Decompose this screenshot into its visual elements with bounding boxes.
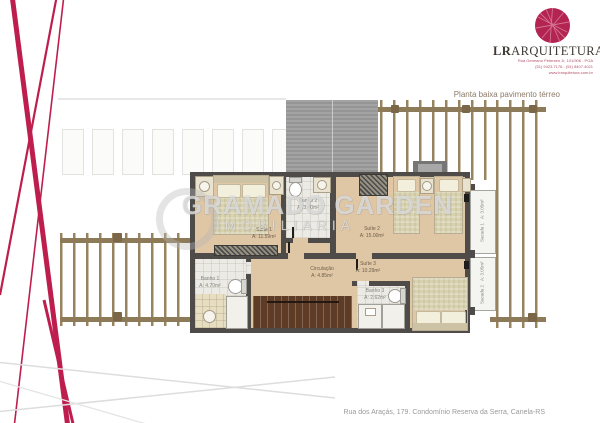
pergola-post-3	[529, 105, 537, 113]
room-label-suite2: Suíte 2 A: 15.00m²	[350, 226, 394, 239]
toilet-tank	[400, 288, 406, 304]
paver-path	[62, 129, 294, 175]
ribbon-line-left	[0, 0, 57, 295]
door-opening-suite3	[356, 253, 372, 259]
paver	[182, 129, 204, 175]
stairs	[253, 296, 352, 328]
room-area: A: 2.62m²	[360, 295, 390, 302]
room-label-sacada2: Sacada 2 A: 3.05m²	[472, 259, 492, 307]
paver	[62, 129, 84, 175]
firm-name-rest: ARQUITETURA	[511, 44, 600, 58]
left-deck-beam-bottom	[60, 317, 190, 322]
footer-address: Rua dos Araçás, 179. Condomínio Reserva …	[245, 409, 545, 416]
suite2-side-table	[462, 178, 471, 192]
room-area: A: 3.05m²	[480, 260, 485, 284]
banho1-shower-stall	[226, 296, 248, 329]
room-label-suite3: Suíte 3 A: 10.29m²	[346, 261, 390, 274]
room-label-banho1: Banho 1 A: 4.70m²	[193, 276, 227, 289]
chimney-core	[418, 164, 442, 172]
firm-contact: Rua Germano Petersen Jr, 101/906 - POA (…	[493, 58, 593, 75]
plan-title: Planta baixa pavimento térreo	[360, 90, 560, 99]
door-leaf-sacada2	[464, 261, 469, 269]
left-deck-post-top	[113, 233, 122, 242]
room-name: Sacada 2	[480, 283, 485, 306]
top-pergola-beam	[375, 107, 546, 112]
room-area: A: 15.00m²	[350, 233, 394, 240]
suite1-wardrobe	[214, 245, 278, 256]
left-deck-slats	[60, 233, 190, 326]
garage-roof	[286, 100, 378, 172]
room-label-banho3: Banho 3 A: 2.62m²	[360, 288, 390, 301]
right-pergola-beam	[490, 317, 546, 322]
room-area: A: 4.70m²	[193, 283, 227, 290]
bed-headboard	[413, 323, 467, 330]
firm-name-bold: LR	[493, 44, 511, 58]
roof-seam	[332, 100, 333, 172]
door-opening-suite1	[288, 253, 304, 259]
room-area: A: 4.85m²	[298, 273, 346, 280]
gray-line-3	[0, 380, 160, 423]
room-label-sacada1: Sacada 1 A: 3.05m²	[472, 192, 492, 250]
pergola-post-1	[391, 105, 399, 113]
firm-contact-line3: www.lrarquitetura.com.br	[493, 70, 593, 76]
room-area: A: 11.59m²	[242, 234, 286, 241]
gray-line-1	[0, 362, 335, 398]
gray-line-2	[0, 377, 335, 412]
wall-stub-3	[470, 307, 475, 315]
door-leaf-sacada1	[464, 194, 469, 202]
paver	[212, 129, 234, 175]
bed-blanket	[413, 278, 467, 310]
right-pergola-slats	[496, 100, 546, 328]
pergola-post-2	[462, 105, 470, 113]
room-label-circulacao: Circulação A: 4.85m²	[298, 266, 346, 279]
door-opening-banho1	[246, 262, 251, 274]
door-opening-banho3	[357, 281, 369, 286]
watermark-subtitle: IMOBILIARIA	[216, 217, 355, 233]
sink-icon	[317, 180, 327, 190]
firm-name: LRARQUITETURA	[493, 44, 593, 59]
room-area: A: 3.05m²	[480, 198, 485, 222]
lr-logo-icon	[534, 7, 571, 44]
ribbon-line-thick	[12, 0, 68, 423]
door-leaf-suite1	[288, 242, 290, 253]
toilet-tank	[241, 279, 247, 294]
bed-headboard	[214, 176, 268, 183]
lamp-icon	[272, 181, 281, 190]
banho3-cubicle-right	[382, 304, 405, 329]
paver	[152, 129, 174, 175]
shower-drain-icon	[203, 310, 216, 323]
paver	[242, 129, 264, 175]
stairs-rail	[267, 301, 339, 303]
suite3-double-bed	[412, 277, 468, 331]
room-area: A: 10.29m²	[346, 268, 390, 275]
paver	[92, 129, 114, 175]
paver	[122, 129, 144, 175]
sink-icon	[365, 308, 376, 316]
room-name: Sacada 1	[480, 221, 485, 244]
pergola-post-4	[528, 313, 537, 322]
listing-image: Suíte 1 A: 11.59m² Banho 2 A: 3.40m² Suí…	[0, 0, 600, 423]
left-deck-post-bottom	[113, 312, 122, 321]
wall-stub-2	[470, 250, 475, 258]
banho3-cubicle-left	[358, 304, 382, 329]
door-opening-banho2	[293, 238, 308, 243]
